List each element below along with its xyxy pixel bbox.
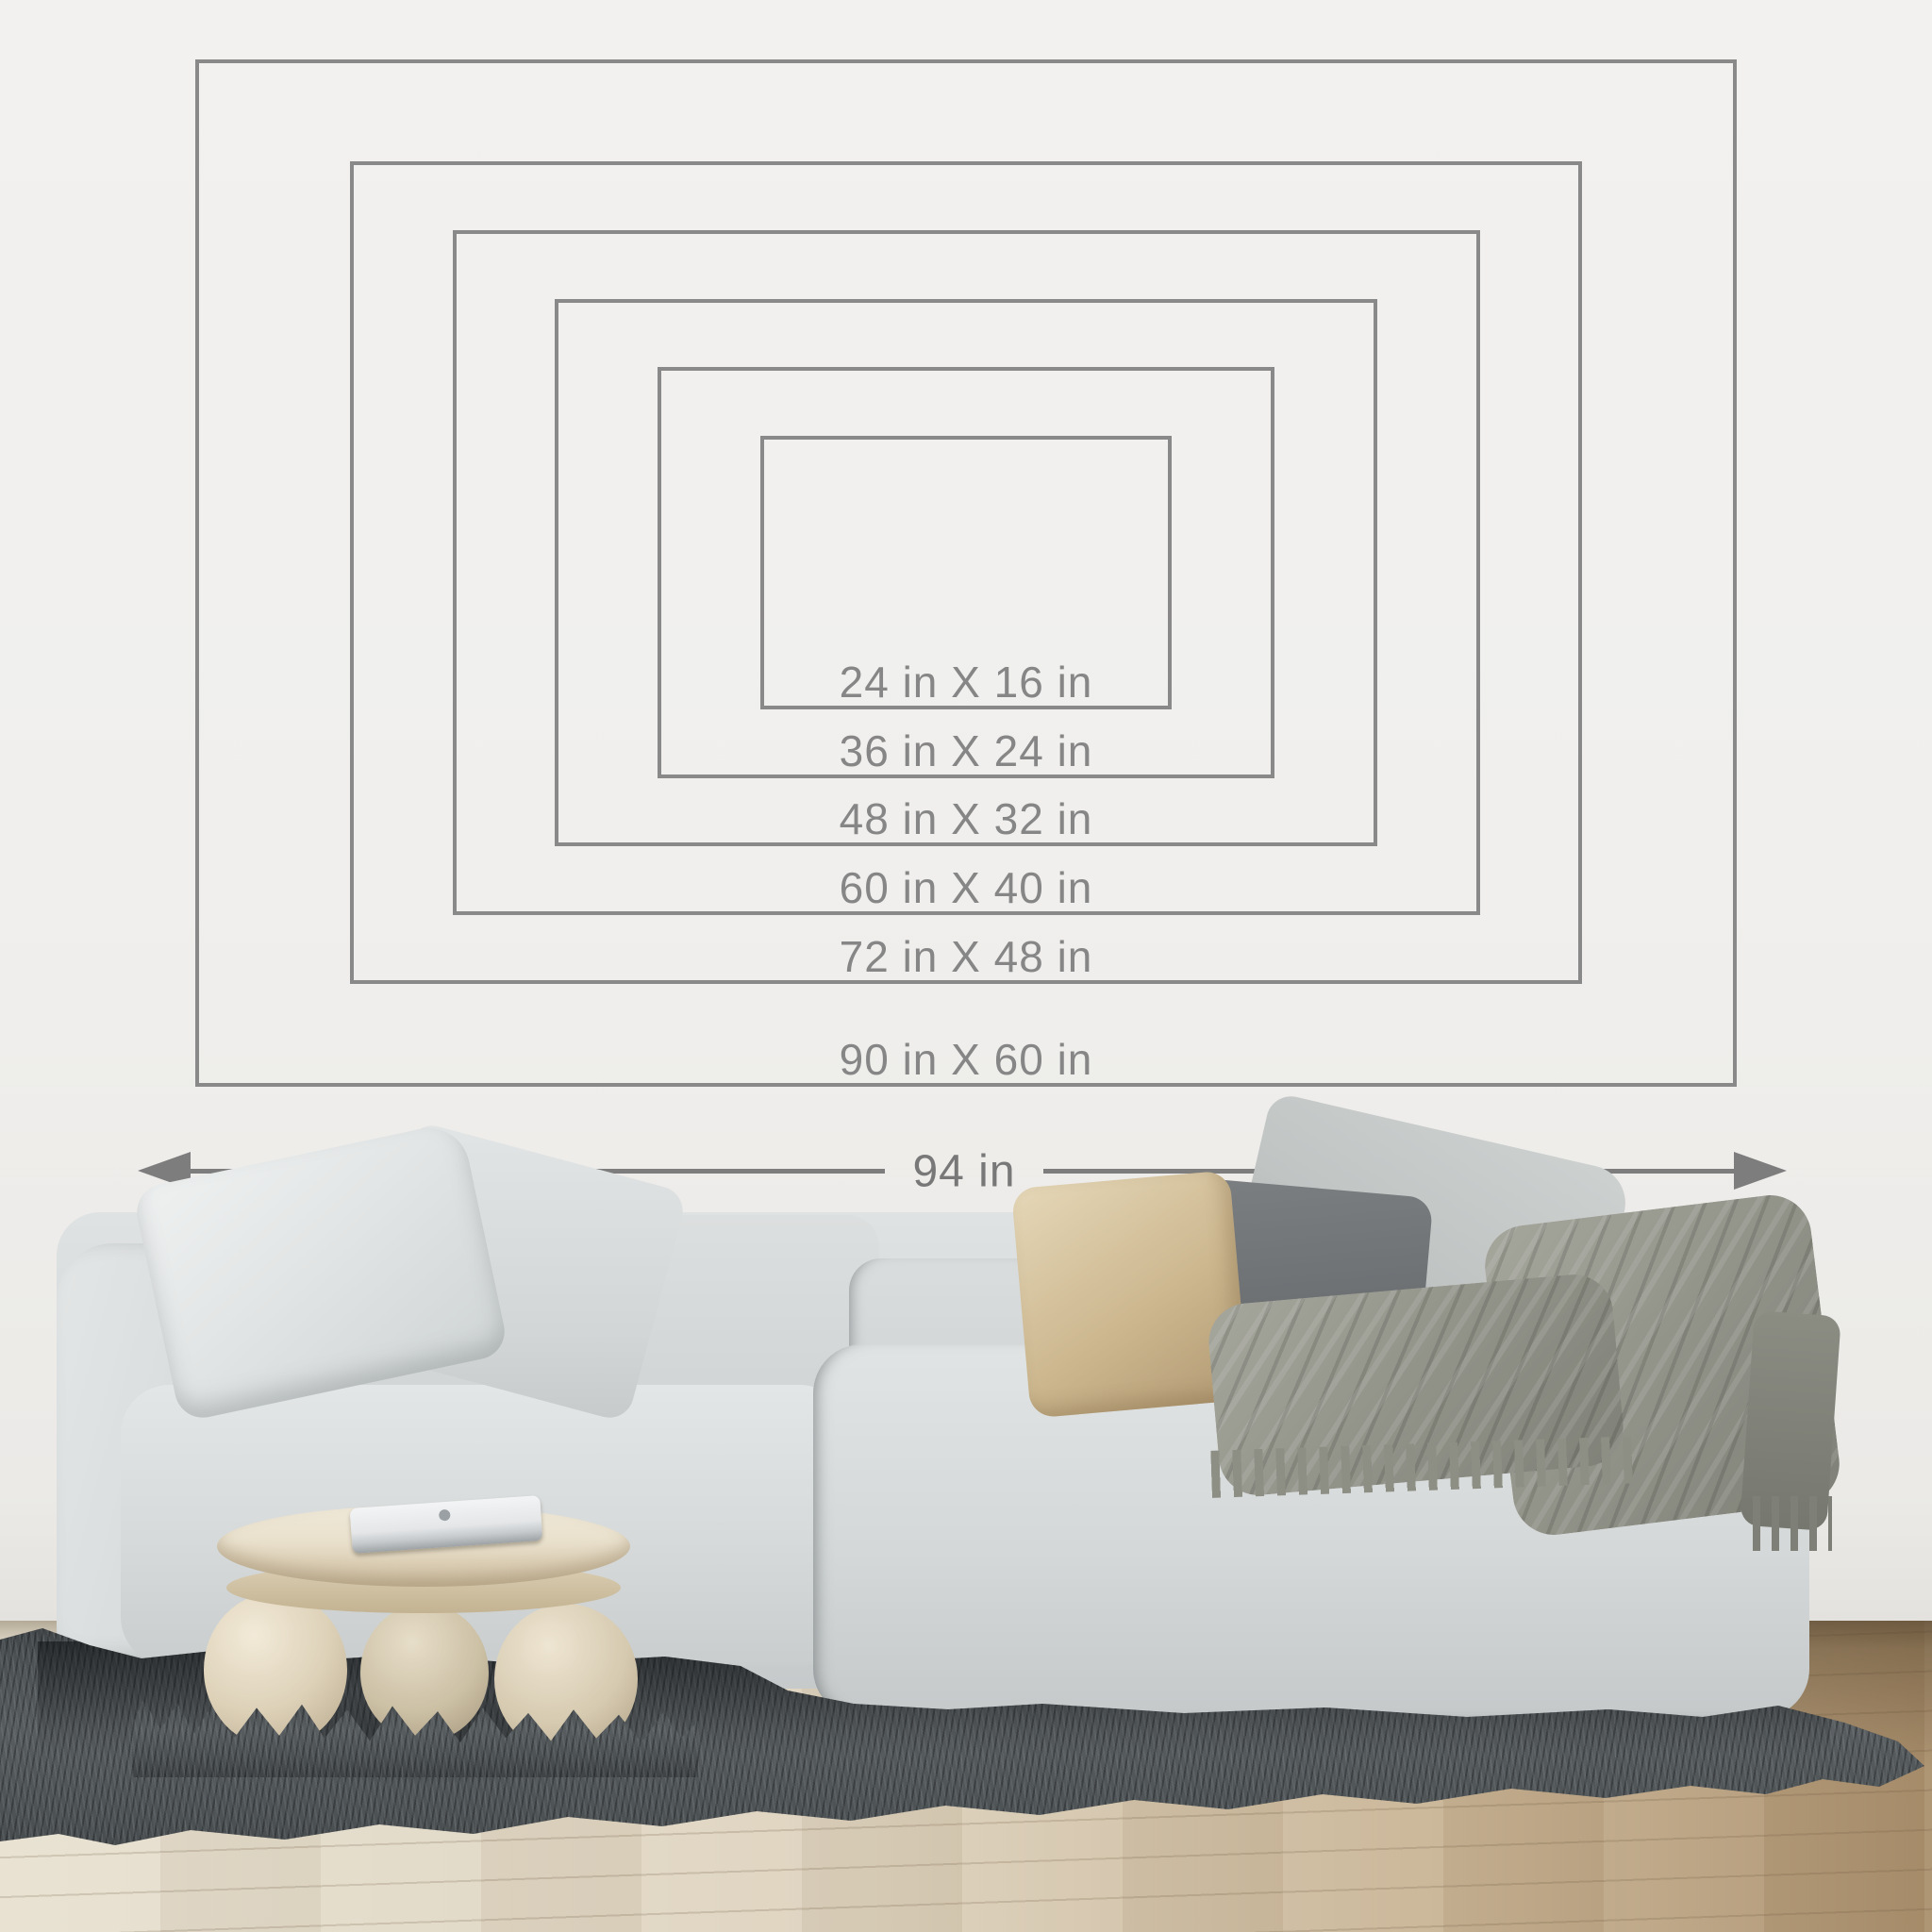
arrow-right-head-icon xyxy=(1734,1152,1787,1190)
blanket-fringe-side xyxy=(1753,1496,1832,1551)
size-label-90x60: 90 in X 60 in xyxy=(840,1034,1093,1085)
table-leg-left xyxy=(204,1592,347,1747)
width-arrow-label: 94 in xyxy=(912,1146,1015,1198)
living-room-size-chart-mockup: 24 in X 16 in36 in X 24 in48 in X 32 in6… xyxy=(0,0,1932,1932)
size-rect-90x60 xyxy=(195,59,1737,1087)
table-leg-center xyxy=(360,1604,489,1741)
